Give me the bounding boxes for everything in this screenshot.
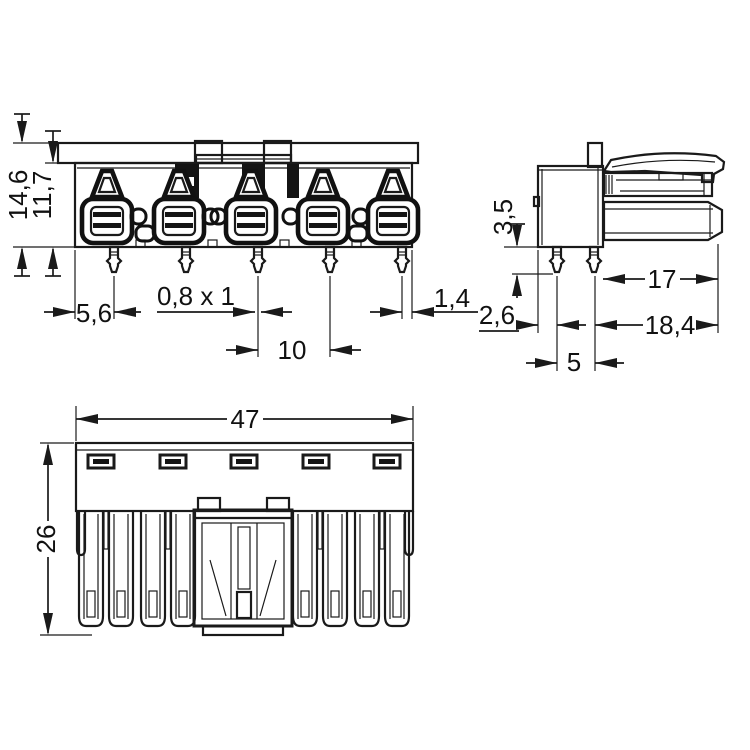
drawing-sheet: 14,6 11,7 5,6 0,8 x 1 bbox=[0, 0, 750, 750]
bottom-claws bbox=[79, 511, 409, 626]
dim-side-pin-spacing: 5 bbox=[567, 347, 581, 377]
side-outline bbox=[534, 143, 724, 247]
dim-front-edge-to-pin: 5,6 bbox=[76, 298, 112, 328]
dim-side-plug-length: 17 bbox=[648, 264, 677, 294]
connector-technical-drawing: 14,6 11,7 5,6 0,8 x 1 bbox=[0, 0, 750, 750]
side-upper-housing bbox=[604, 173, 712, 196]
dim-bottom-overall-height: 26 bbox=[31, 525, 61, 554]
front-latch-tab bbox=[264, 141, 291, 163]
front-contacts bbox=[82, 171, 418, 243]
side-pins bbox=[550, 247, 601, 272]
dim-front-pin-to-edge: 1,4 bbox=[434, 283, 470, 313]
bottom-view: 47 26 bbox=[31, 404, 413, 635]
bottom-center-block bbox=[194, 498, 292, 635]
bottom-body-band bbox=[76, 443, 413, 511]
side-latch-arm bbox=[604, 153, 724, 182]
side-top-tab bbox=[588, 143, 602, 167]
dim-front-pin-cross-section: 0,8 x 1 bbox=[157, 281, 235, 311]
bottom-outline bbox=[76, 443, 413, 555]
front-rear-step bbox=[58, 143, 418, 163]
dim-front-pin-pitch: 10 bbox=[278, 335, 307, 365]
front-view: 14,6 11,7 5,6 0,8 x 1 bbox=[3, 114, 478, 365]
dim-bottom-overall-width: 47 bbox=[231, 404, 260, 434]
side-view: 3,5 2,6 17 18,4 5 bbox=[479, 143, 724, 377]
front-pins bbox=[107, 247, 409, 272]
dim-front-body-height: 11,7 bbox=[27, 171, 57, 220]
dim-side-overall-depth: 18,4 bbox=[645, 310, 696, 340]
side-plug-shaft bbox=[604, 202, 722, 240]
dim-side-pin-shoulder: 3,5 bbox=[488, 199, 518, 235]
dim-side-edge-to-pin: 2,6 bbox=[479, 300, 515, 330]
side-body bbox=[538, 166, 603, 247]
front-latch-tab bbox=[195, 141, 222, 163]
